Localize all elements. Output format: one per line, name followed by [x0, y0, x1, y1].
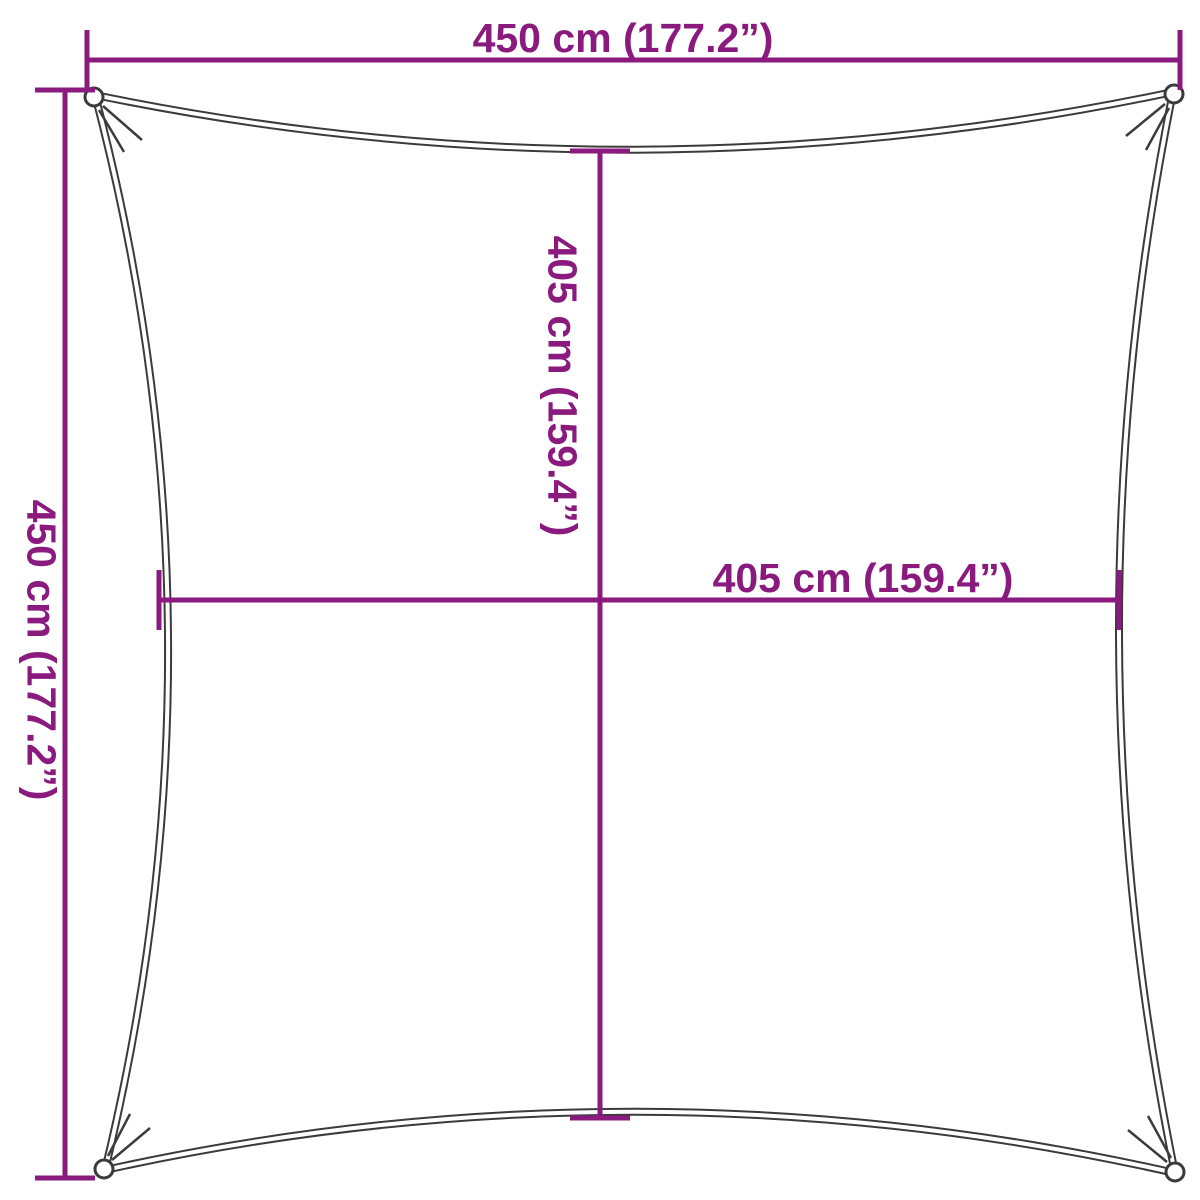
dimension-label-inner-height: 405 cm (159.4”): [542, 236, 583, 537]
grommet-ring-icon: [95, 1160, 113, 1178]
dimension-label-inner-width: 405 cm (159.4”): [713, 558, 1014, 599]
dimension-label-left-height: 450 cm (177.2”): [21, 500, 62, 801]
diagram-canvas: 450 cm (177.2”) 450 cm (177.2”) 405 cm (…: [0, 0, 1200, 1200]
shade-sail-dimension-drawing: [0, 0, 1200, 1200]
sail-outline: [95, 92, 1175, 1173]
grommet-ring-icon: [1166, 1163, 1184, 1181]
dimension-label-top-width: 450 cm (177.2”): [473, 18, 774, 59]
sail-outline-outer: [95, 92, 1175, 1173]
